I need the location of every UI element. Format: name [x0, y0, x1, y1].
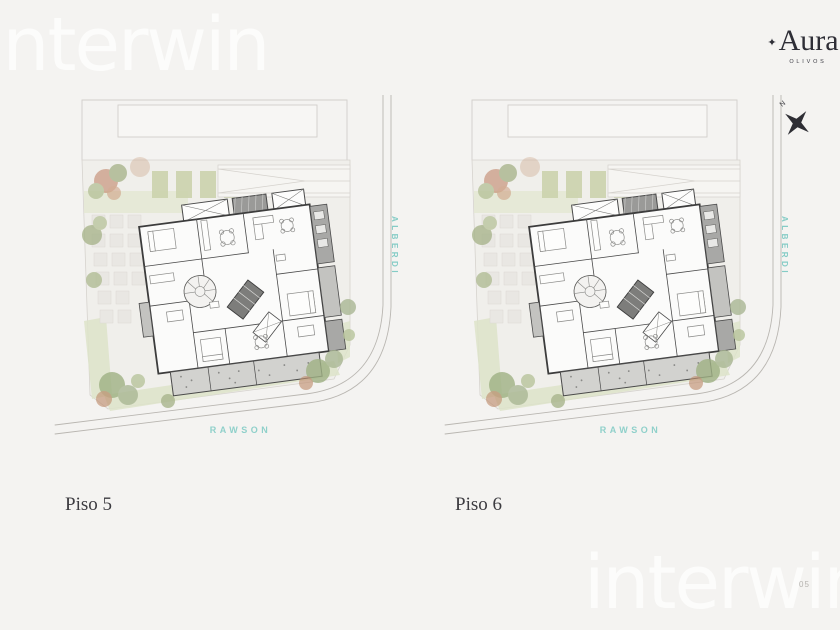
aura-olivos-logo: ✦ Aura OLIVOS: [766, 26, 840, 65]
floorplan-drawing-piso-6: [438, 95, 810, 455]
floorplan-piso-6: ALBERDI RAWSON Piso 6: [438, 95, 810, 455]
street-label-alberdi: ALBERDI: [780, 216, 789, 276]
star-icon: ✦: [767, 38, 776, 49]
logo-subtitle: OLIVOS: [776, 59, 840, 65]
logo-name: Aura: [779, 26, 839, 56]
street-label-rawson: RAWSON: [158, 425, 323, 435]
page-number: 05: [799, 580, 810, 589]
floorplan-drawing-piso-5: [48, 95, 420, 455]
brochure-page: interwin interwin: [0, 0, 840, 630]
interwin-watermark-top: interwin: [0, 2, 268, 88]
street-label-alberdi: ALBERDI: [390, 216, 399, 276]
street-label-rawson: RAWSON: [548, 425, 713, 435]
floorplan-piso-5: ALBERDI RAWSON Piso 5: [48, 95, 420, 455]
plan-caption-piso-6: Piso 6: [455, 494, 502, 516]
north-label: N: [779, 100, 787, 109]
north-arrow-icon: N: [773, 96, 817, 144]
plan-caption-piso-5: Piso 5: [65, 494, 112, 516]
